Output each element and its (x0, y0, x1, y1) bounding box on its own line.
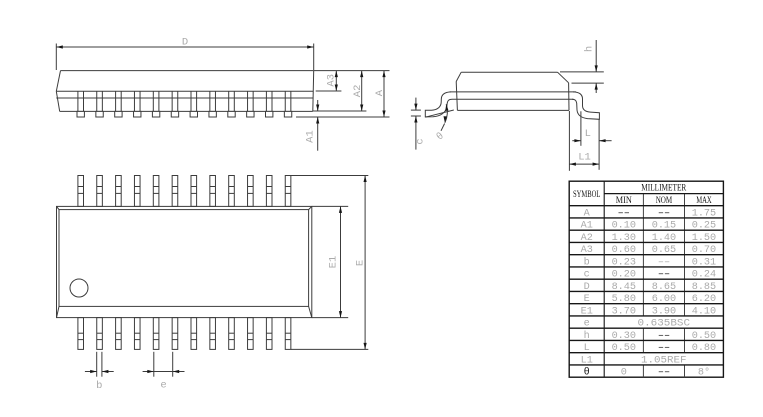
svg-text:1.05REF: 1.05REF (641, 355, 687, 366)
svg-text:0: 0 (621, 368, 627, 379)
svg-text:A: A (374, 89, 386, 96)
svg-text:A2: A2 (352, 85, 364, 98)
svg-text:0.635BSC: 0.635BSC (638, 319, 691, 330)
svg-text:0.20: 0.20 (612, 270, 636, 281)
svg-text:A2: A2 (581, 233, 593, 244)
svg-text:L: L (584, 343, 590, 354)
svg-text:MILLIMETER: MILLIMETER (641, 184, 687, 194)
svg-text:0.30: 0.30 (612, 331, 636, 342)
svg-text:0.10: 0.10 (612, 221, 636, 232)
svg-text:8.45: 8.45 (612, 282, 636, 293)
svg-text:e: e (584, 319, 590, 330)
svg-text:6.20: 6.20 (692, 294, 716, 305)
svg-text:c: c (584, 270, 590, 281)
svg-text:A1: A1 (305, 130, 317, 143)
svg-text:1.50: 1.50 (692, 233, 716, 244)
svg-text:0.15: 0.15 (652, 221, 676, 232)
svg-text:0.24: 0.24 (692, 270, 716, 281)
svg-text:0.50: 0.50 (612, 343, 636, 354)
svg-text:L1: L1 (581, 355, 593, 366)
svg-text:b: b (96, 380, 102, 392)
svg-text:E: E (584, 294, 590, 305)
svg-text:0.65: 0.65 (652, 245, 676, 256)
svg-text:E1: E1 (581, 306, 593, 317)
svg-text:L1: L1 (578, 152, 591, 164)
svg-text:0.70: 0.70 (692, 245, 716, 256)
svg-text:h: h (584, 46, 596, 52)
svg-text:6.00: 6.00 (652, 294, 676, 305)
svg-text:1.75: 1.75 (692, 208, 716, 219)
svg-text:0.80: 0.80 (692, 343, 716, 354)
svg-text:––: –– (658, 343, 670, 354)
svg-text:––: –– (658, 257, 670, 268)
svg-text:0.25: 0.25 (692, 221, 716, 232)
svg-text:0.31: 0.31 (692, 257, 716, 268)
svg-text:––: –– (658, 208, 670, 219)
svg-text:θ: θ (584, 367, 590, 379)
svg-text:NOM: NOM (656, 196, 673, 206)
svg-text:SYMBOL: SYMBOL (573, 190, 601, 200)
svg-text:b: b (584, 256, 590, 268)
svg-text:0.50: 0.50 (692, 331, 716, 342)
svg-text:D: D (584, 282, 590, 293)
svg-text:c: c (415, 138, 427, 144)
svg-text:MAX: MAX (696, 196, 712, 206)
svg-text:8.85: 8.85 (692, 282, 716, 293)
svg-text:3.70: 3.70 (612, 306, 636, 317)
svg-text:0.23: 0.23 (612, 257, 636, 268)
svg-text:4.10: 4.10 (692, 306, 716, 317)
svg-text:L: L (585, 128, 591, 140)
svg-text:E: E (355, 260, 367, 266)
svg-text:3.90: 3.90 (652, 306, 676, 317)
svg-text:A3: A3 (326, 74, 338, 87)
svg-text:A: A (584, 208, 591, 219)
svg-text:h: h (584, 330, 590, 342)
svg-text:1.30: 1.30 (612, 233, 636, 244)
svg-text:5.80: 5.80 (612, 294, 636, 305)
svg-text:––: –– (658, 270, 670, 281)
svg-text:8°: 8° (698, 367, 710, 379)
svg-text:D: D (182, 36, 188, 48)
svg-text:––: –– (658, 368, 670, 379)
svg-text:––: –– (658, 331, 670, 342)
svg-text:E1: E1 (328, 256, 340, 269)
svg-text:MIN: MIN (616, 196, 632, 206)
svg-text:1.40: 1.40 (652, 233, 676, 244)
svg-text:A1: A1 (581, 221, 593, 232)
svg-text:e: e (160, 380, 166, 392)
svg-text:0.60: 0.60 (612, 245, 636, 256)
svg-text:––: –– (618, 208, 630, 219)
svg-text:A3: A3 (581, 245, 593, 256)
svg-text:8.65: 8.65 (652, 282, 676, 293)
